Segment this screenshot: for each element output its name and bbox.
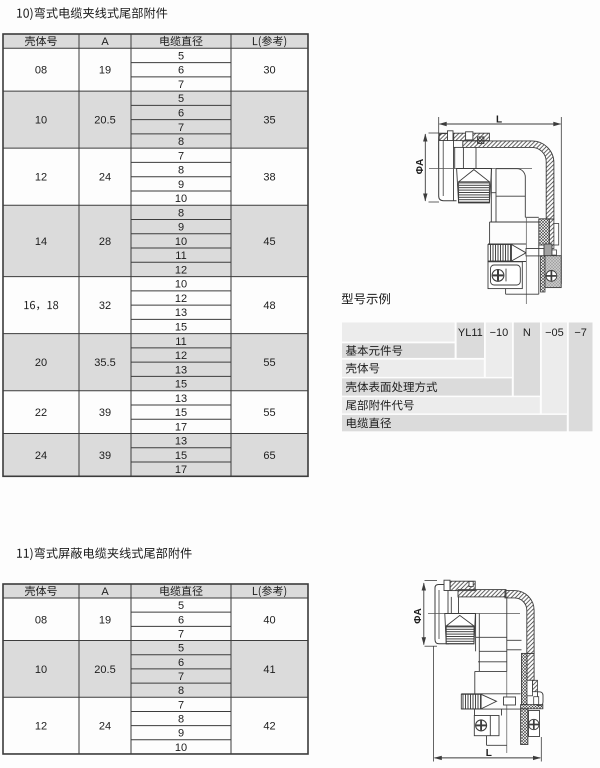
svg-text:17: 17 <box>175 421 187 433</box>
svg-text:12: 12 <box>35 172 47 184</box>
svg-text:10: 10 <box>175 193 187 205</box>
svg-text:08: 08 <box>35 614 47 626</box>
svg-text:08: 08 <box>35 65 47 77</box>
svg-text:10: 10 <box>175 279 187 291</box>
svg-text:17: 17 <box>175 464 187 476</box>
svg-text:5: 5 <box>178 643 184 655</box>
svg-text:15: 15 <box>175 322 187 334</box>
svg-text:7: 7 <box>178 699 184 711</box>
svg-text:24: 24 <box>99 721 111 733</box>
svg-text:45: 45 <box>263 236 275 248</box>
svg-text:14: 14 <box>35 236 47 248</box>
svg-text:48: 48 <box>263 300 275 312</box>
svg-text:28: 28 <box>99 236 111 248</box>
svg-text:−05: −05 <box>545 327 564 339</box>
svg-text:5: 5 <box>178 50 184 62</box>
svg-text:5: 5 <box>178 93 184 105</box>
svg-text:ΦA: ΦA <box>415 159 426 174</box>
svg-text:L: L <box>496 114 502 125</box>
svg-text:30: 30 <box>263 65 275 77</box>
svg-text:32: 32 <box>99 300 111 312</box>
svg-text:19: 19 <box>99 65 111 77</box>
svg-text:ΦA: ΦA <box>413 608 424 623</box>
svg-text:7: 7 <box>178 150 184 162</box>
svg-text:22: 22 <box>35 407 47 419</box>
svg-text:35.5: 35.5 <box>94 357 115 369</box>
svg-text:8: 8 <box>178 685 184 697</box>
svg-text:10: 10 <box>175 236 187 248</box>
svg-text:15: 15 <box>175 379 187 391</box>
svg-text:19: 19 <box>99 614 111 626</box>
svg-text:42: 42 <box>263 721 275 733</box>
svg-text:9: 9 <box>178 222 184 234</box>
svg-text:11: 11 <box>175 250 186 262</box>
svg-text:65: 65 <box>263 450 275 462</box>
svg-text:24: 24 <box>35 450 47 462</box>
svg-text:9: 9 <box>178 179 184 191</box>
svg-text:A: A <box>101 586 109 598</box>
svg-text:12: 12 <box>35 721 47 733</box>
svg-text:7: 7 <box>178 628 184 640</box>
svg-text:−7: −7 <box>574 327 587 339</box>
svg-text:55: 55 <box>263 407 275 419</box>
svg-text:8: 8 <box>178 714 184 726</box>
svg-text:N: N <box>523 327 531 339</box>
svg-text:L: L <box>486 748 492 759</box>
svg-text:12: 12 <box>175 264 187 276</box>
svg-text:12: 12 <box>175 293 187 305</box>
svg-text:8: 8 <box>178 165 184 177</box>
svg-text:7: 7 <box>178 79 184 91</box>
svg-text:55: 55 <box>263 357 275 369</box>
svg-text:A: A <box>101 36 109 48</box>
svg-text:11: 11 <box>175 336 186 348</box>
svg-text:20: 20 <box>35 357 47 369</box>
svg-text:6: 6 <box>178 108 184 120</box>
svg-text:40: 40 <box>263 614 275 626</box>
svg-text:15: 15 <box>175 407 187 419</box>
svg-text:35: 35 <box>263 115 275 127</box>
svg-text:7: 7 <box>178 122 184 134</box>
svg-text:YL11: YL11 <box>458 327 483 339</box>
svg-text:7: 7 <box>178 671 184 683</box>
svg-text:9: 9 <box>178 728 184 740</box>
svg-text:6: 6 <box>178 65 184 77</box>
svg-text:13: 13 <box>175 393 187 405</box>
svg-text:39: 39 <box>99 407 111 419</box>
svg-text:13: 13 <box>175 307 187 319</box>
svg-text:24: 24 <box>99 172 111 184</box>
svg-text:10: 10 <box>175 742 187 754</box>
svg-text:5: 5 <box>178 600 184 612</box>
svg-text:15: 15 <box>175 450 187 462</box>
svg-text:38: 38 <box>263 172 275 184</box>
svg-text:20.5: 20.5 <box>94 115 115 127</box>
svg-text:−10: −10 <box>490 327 509 339</box>
svg-text:8: 8 <box>178 207 184 219</box>
svg-text:10: 10 <box>35 115 47 127</box>
svg-text:13: 13 <box>175 436 187 448</box>
svg-text:41: 41 <box>263 664 275 676</box>
svg-text:6: 6 <box>178 657 184 669</box>
svg-text:6: 6 <box>178 614 184 626</box>
svg-text:12: 12 <box>175 350 187 362</box>
svg-text:20.5: 20.5 <box>94 664 115 676</box>
svg-text:13: 13 <box>175 364 187 376</box>
svg-text:10: 10 <box>35 664 47 676</box>
svg-text:39: 39 <box>99 450 111 462</box>
svg-text:8: 8 <box>178 136 184 148</box>
